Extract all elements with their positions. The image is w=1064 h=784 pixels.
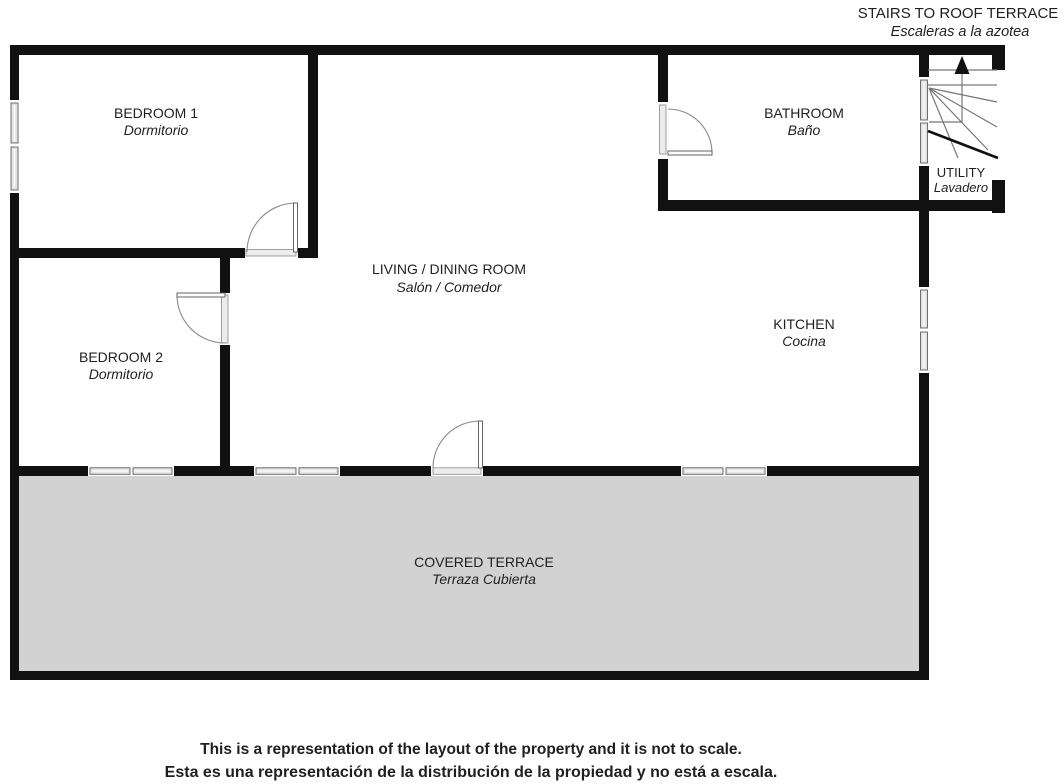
stairs-note: STAIRS TO ROOF TERRACE Escaleras a la az…	[858, 5, 1059, 40]
room-label-bathroom: BATHROOM	[764, 105, 844, 121]
window-symbol-kitchen	[919, 287, 929, 373]
wall-terrace-bottom	[10, 671, 928, 680]
room-label-utility: UTILITY	[937, 165, 986, 180]
stairs-note-title: STAIRS TO ROOF TERRACE	[858, 5, 1059, 22]
door-swing-bathroom	[658, 102, 712, 159]
wall-bedroom2-right	[220, 248, 230, 476]
floorplan-page: STAIRS TO ROOF TERRACE Escaleras a la az…	[0, 0, 1064, 784]
door-swing-entrance	[431, 421, 483, 476]
door-swing-bedroom1	[245, 203, 298, 258]
stairs-symbol	[928, 56, 998, 158]
room-label-living-dining: LIVING / DINING ROOM	[372, 261, 526, 277]
door-swing-bedroom2	[177, 293, 230, 345]
stairs-note-subtitle: Escaleras a la azotea	[891, 24, 1030, 40]
room-sublabel-bedroom1: Dormitorio	[124, 122, 189, 138]
window-symbol-bedroom1	[10, 100, 19, 193]
room-sublabel-bedroom2: Dormitorio	[89, 366, 154, 382]
floorplan-svg: STAIRS TO ROOF TERRACE Escaleras a la az…	[0, 0, 1064, 784]
room-label-bedroom2: BEDROOM 2	[79, 349, 163, 365]
window-symbol-terrace-right	[681, 466, 767, 476]
disclaimer-line-en: This is a representation of the layout o…	[200, 741, 742, 758]
room-label-kitchen: KITCHEN	[773, 316, 834, 332]
window-symbol-terrace-mid	[254, 466, 340, 476]
room-sublabel-living-dining: Salón / Comedor	[396, 279, 502, 295]
wall-utility-right-top	[992, 45, 1005, 70]
room-label-bedroom1: BEDROOM 1	[114, 105, 198, 121]
room-sublabel-bathroom: Baño	[788, 122, 821, 138]
wall-top	[10, 45, 1005, 55]
room-sublabel-covered-terrace: Terraza Cubierta	[432, 571, 536, 587]
disclaimer: This is a representation of the layout o…	[165, 741, 778, 781]
window-symbol-terrace-left	[88, 466, 174, 476]
room-sublabel-utility: Lavadero	[934, 180, 988, 195]
wall-utility-right-bottom	[992, 180, 1005, 213]
room-label-covered-terrace: COVERED TERRACE	[414, 554, 554, 570]
wall-bathroom-utility-bottom	[658, 200, 1005, 211]
room-sublabel-kitchen: Cocina	[782, 333, 826, 349]
disclaimer-line-es: Esta es una representación de la distrib…	[165, 764, 778, 781]
window-symbol-bathroom	[919, 77, 929, 166]
wall-bedroom1-right	[308, 45, 318, 258]
